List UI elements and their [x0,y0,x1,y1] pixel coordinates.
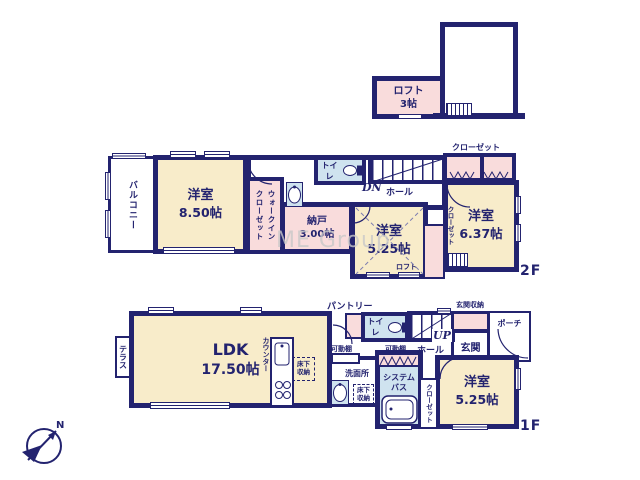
toilet-icon [343,164,362,177]
hall-1f-label: ホール [417,343,444,356]
room-size: 3帖 [400,98,417,111]
floorplan-page: ロフト 3帖 バルコニー 洋室 8.50帖 ウォークイン クローゼット トイレ … [0,0,640,480]
closet-1f: クローゼット [419,378,438,429]
shelf-left [331,353,360,364]
room-toilet-1f: トイレ [361,312,409,342]
room-toilet-2f: トイレ [314,156,366,185]
washroom-label: 洗面所 [345,368,369,379]
window [398,272,420,278]
closet-1f-label: クローゼット [424,384,434,423]
closet-top-label: クローゼット [452,142,500,153]
room-balcony: バルコニー [108,156,157,253]
porch-label: ポーチ [498,318,522,329]
underfloor-storage-wash: 床下 収納 [353,384,374,405]
pantry-label: パントリー [327,299,372,312]
shelf-right [377,353,420,367]
room-terrace: テラス [115,336,131,378]
compass-icon: N [14,414,74,474]
window [163,247,235,254]
underfloor-storage-ldk: 床下 収納 [292,357,315,381]
bath-line2: バス [383,383,415,393]
entrance-storage-label: 玄関収納 [456,300,484,310]
underfloor-line2: 収納 [357,395,370,403]
washbasin-icon [286,182,303,211]
shelf-left-label: 可動棚 [331,344,352,354]
bath-label: システム バス [383,373,415,394]
ladder-icon [446,103,472,116]
window [515,368,521,390]
kitchen-unit [270,337,294,411]
window [112,153,146,159]
washbasin-icon [331,380,349,409]
window [204,151,230,158]
toilet-label: トイレ [365,316,386,338]
bath-line1: システム [383,373,415,383]
floor1-label: 1F [520,418,541,434]
floor2-label: 2F [520,263,541,279]
window [105,172,111,200]
hall-2f-label: ホール [386,185,413,198]
closet-side-label: クローゼット [445,206,455,258]
loft-note-label: ロフト [396,262,417,272]
room-label: 納戸 [307,215,327,228]
window [240,307,262,314]
room-size: 17.50帖 [201,361,259,379]
entrance-label: 玄関 [461,339,481,354]
balcony-label: バルコニー [126,180,139,230]
window [515,196,521,214]
window [452,424,488,430]
toilet-label: トイレ [318,160,341,182]
closet-637-top [443,153,516,182]
window [105,210,111,238]
window [515,224,521,242]
room-label: LDK [213,340,249,361]
room-label: 洋室 [468,209,494,226]
watermark: ME Group [276,228,391,253]
entrance-storage [451,311,490,332]
window [437,308,451,314]
toilet-icon [388,321,405,334]
window [148,307,174,314]
underfloor-line2: 収納 [297,369,310,377]
terrace-label: テラス [118,345,129,369]
room-bedroom-525-1f: 洋室 5.25帖 [435,355,519,429]
shelf-right-label: 可動棚 [385,344,406,354]
window [398,114,422,119]
bathtub-icon [381,395,418,428]
stairs-dn-label: DN [362,181,382,194]
closet-525-2f [423,224,445,279]
window [150,402,230,409]
room-size: 6.37帖 [459,226,502,242]
ladder-icon [447,253,468,267]
room-size: 5.25帖 [455,392,498,408]
stairs-up-label: UP [432,329,452,342]
room-label: 洋室 [464,375,490,392]
room-bedroom-850: 洋室 8.50帖 [153,155,248,254]
room-label: ロフト [394,85,424,98]
room-size: 8.50帖 [179,205,222,221]
room-label: 洋室 [187,188,213,205]
window [170,151,196,158]
wic-line2: クローゼット [253,190,265,241]
compass-north-label: N [56,420,64,431]
window [366,272,390,278]
wic-label: ウォークイン クローゼット [253,190,277,241]
stairs-2f [368,156,448,184]
